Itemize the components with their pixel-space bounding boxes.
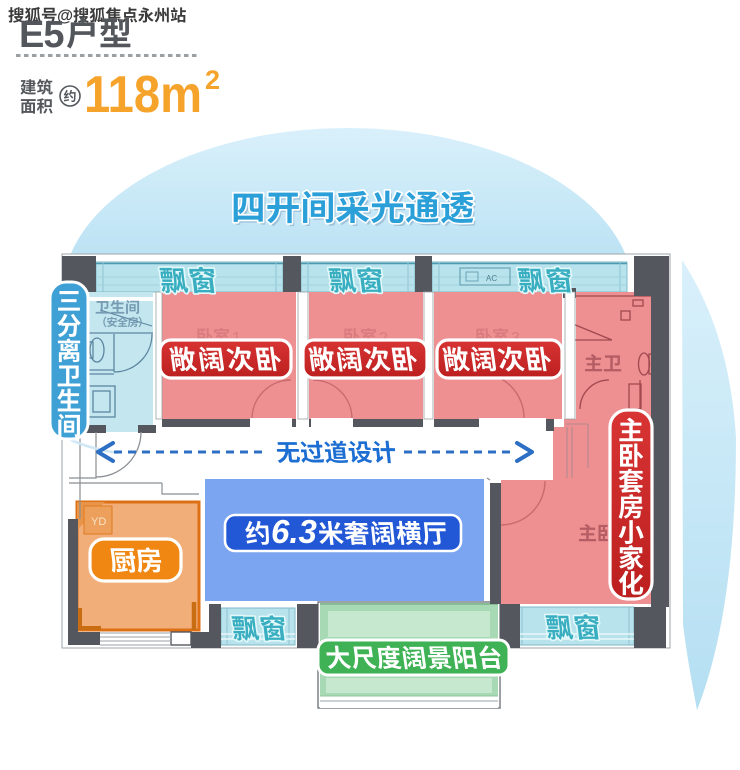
- svg-text:118m: 118m: [84, 66, 202, 124]
- svg-text:2: 2: [205, 65, 220, 95]
- svg-text:E5: E5: [19, 14, 64, 56]
- svg-text:AC: AC: [486, 274, 497, 283]
- svg-text:6.3: 6.3: [271, 513, 317, 550]
- svg-text:YD: YD: [91, 516, 106, 528]
